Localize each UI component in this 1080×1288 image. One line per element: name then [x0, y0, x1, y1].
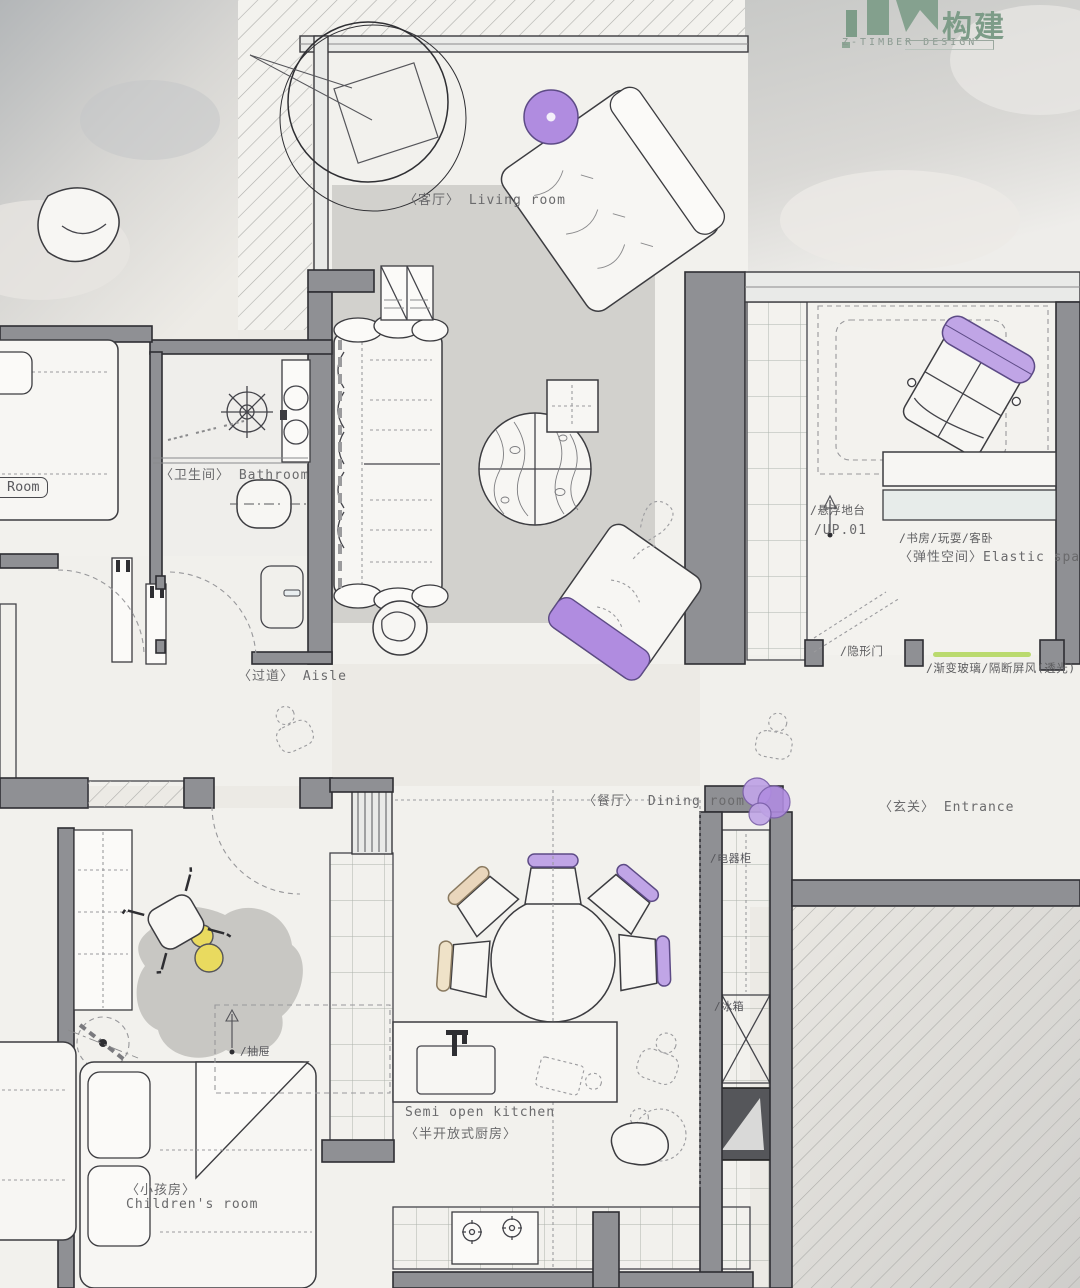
label-elastic-space: 〈弹性空间〉Elastic space [899, 546, 1080, 565]
globe [373, 601, 427, 655]
dining-chair [525, 854, 581, 904]
glass-partition-line [933, 652, 1031, 657]
children-wardrobe [74, 830, 132, 1010]
double-basin [280, 360, 310, 462]
balcony-door-kitchen [352, 788, 392, 854]
pet-dog [609, 1123, 668, 1165]
kitchen-island [393, 1022, 617, 1102]
cloud-photo-top-left [0, 0, 238, 348]
kitchen-tall-cabinet [330, 853, 393, 1153]
label-elastic-uses: /书房/玩耍/客卧 [899, 530, 993, 546]
label-entrance: 〈玄关〉 Entrance [879, 796, 1014, 815]
label-partial-room: Room [0, 477, 48, 498]
children-bed [80, 1062, 316, 1288]
stove [452, 1212, 538, 1264]
label-appliance-cabinet: /电器柜 [710, 850, 752, 866]
label-hidden-door: /隐形门 [840, 643, 883, 659]
label-dining-room: 〈餐厅〉 Dining room [583, 790, 745, 809]
elastic-room-wardrobe [747, 302, 807, 660]
desk-cabinet [883, 452, 1056, 520]
label-bathroom: 〈卫生间〉 Bathroom [160, 464, 309, 483]
label-children-en: Children's room [126, 1197, 258, 1212]
side-table [547, 380, 598, 432]
dining-chair [436, 938, 490, 997]
label-floating-platform: /悬浮地台 [810, 502, 865, 518]
label-up-level: /UP.01 [814, 523, 867, 538]
label-kitchen-en: Semi open kitchen [405, 1105, 555, 1120]
tile-decor-squares [381, 266, 433, 320]
dining-chair [619, 933, 671, 991]
pouf-button [547, 113, 556, 122]
label-children-cn: 〈小孩房〉 [126, 1179, 196, 1198]
appliance-cabinet [722, 830, 770, 1288]
label-kitchen-cn: 〈半开放式厨房〉 [405, 1123, 517, 1142]
label-drawer: /抽屉 [240, 1043, 270, 1059]
label-glass-partition: /渐变玻璃/隔断屏风(透光) [926, 660, 1076, 676]
label-fridge: /冰箱 [714, 998, 744, 1014]
insulated-wall-segment [88, 781, 184, 807]
left-room-bed [0, 1042, 76, 1240]
logo-underline [905, 40, 994, 50]
floor-plan-canvas: .w{fill:#8f9094;stroke:#2e2e32;stroke-wi… [0, 0, 1080, 1288]
sofa [334, 314, 448, 612]
label-aisle: 〈过道〉 Aisle [238, 665, 347, 684]
label-living-room: 〈客厅〉 Living room [404, 189, 566, 208]
kitchen-bottom-counter [393, 1207, 750, 1269]
